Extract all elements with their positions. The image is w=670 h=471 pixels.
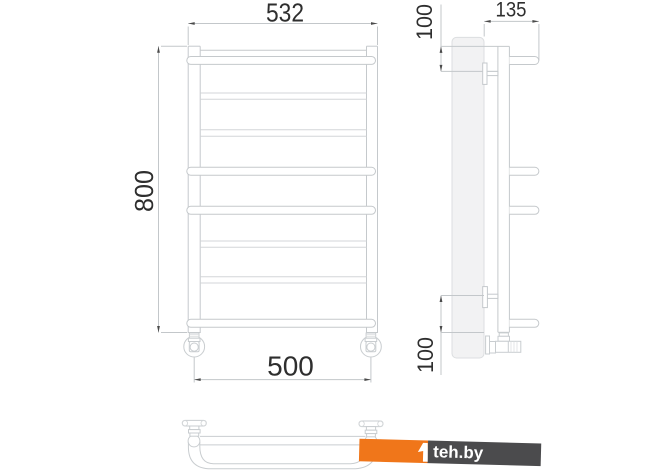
- svg-text:800: 800: [129, 170, 159, 212]
- svg-text:532: 532: [266, 0, 304, 27]
- svg-text:100: 100: [412, 4, 437, 40]
- svg-text:135: 135: [496, 0, 527, 21]
- svg-text:teh.by: teh.by: [433, 442, 484, 462]
- svg-text:500: 500: [267, 351, 314, 382]
- svg-text:100: 100: [413, 337, 438, 373]
